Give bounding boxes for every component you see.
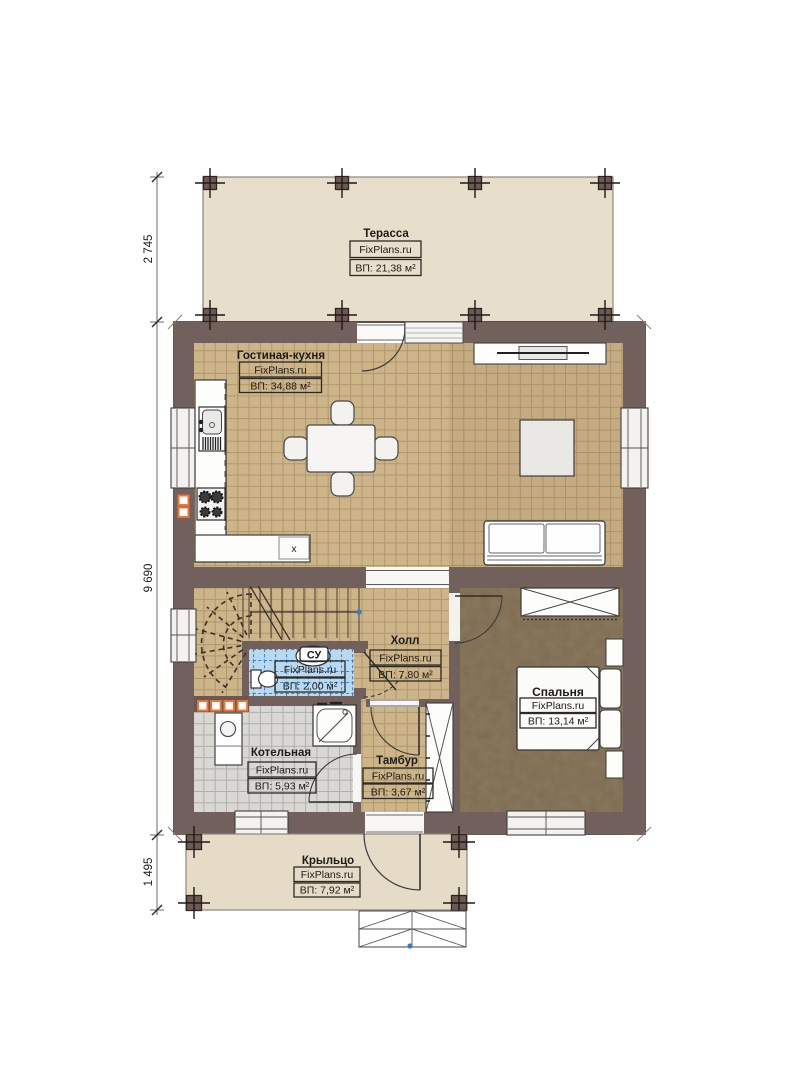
- svg-text:ВП: 2,00 м²: ВП: 2,00 м²: [283, 681, 338, 693]
- svg-text:Котельная: Котельная: [251, 747, 311, 759]
- svg-text:FixPlans.ru: FixPlans.ru: [359, 244, 412, 256]
- svg-text:ВП: 7,92 м²: ВП: 7,92 м²: [300, 885, 355, 897]
- svg-text:9 690: 9 690: [143, 564, 155, 593]
- svg-text:Холл: Холл: [391, 635, 420, 647]
- svg-text:Спальня: Спальня: [532, 685, 584, 699]
- svg-text:Крыльцо: Крыльцо: [302, 855, 354, 867]
- svg-text:FixPlans.ru: FixPlans.ru: [301, 869, 354, 881]
- svg-text:FixPlans.ru: FixPlans.ru: [372, 771, 425, 783]
- svg-text:СУ: СУ: [307, 650, 322, 662]
- svg-text:ВП: 13,14 м²: ВП: 13,14 м²: [528, 716, 589, 728]
- svg-text:ВП: 34,88 м²: ВП: 34,88 м²: [250, 381, 311, 393]
- svg-text:ВП: 3,67 м²: ВП: 3,67 м²: [371, 787, 426, 799]
- svg-text:FixPlans.ru: FixPlans.ru: [256, 765, 309, 777]
- svg-text:ВП: 7,80 м²: ВП: 7,80 м²: [378, 669, 433, 681]
- svg-text:Терасса: Терасса: [363, 228, 409, 240]
- svg-text:FixPlans.ru: FixPlans.ru: [379, 653, 432, 665]
- svg-text:ВП: 21,38 м²: ВП: 21,38 м²: [355, 263, 416, 275]
- svg-text:Гостиная-кухня: Гостиная-кухня: [237, 350, 325, 362]
- svg-text:ВП: 5,93 м²: ВП: 5,93 м²: [255, 781, 310, 793]
- svg-text:FixPlans.ru: FixPlans.ru: [532, 700, 585, 712]
- svg-text:1 495: 1 495: [143, 858, 155, 887]
- svg-text:2 745: 2 745: [143, 235, 155, 264]
- svg-text:FixPlans.ru: FixPlans.ru: [254, 365, 307, 377]
- svg-text:Тамбур: Тамбур: [376, 755, 418, 767]
- svg-text:x: x: [292, 544, 297, 555]
- svg-text:FixPlans.ru: FixPlans.ru: [284, 664, 337, 676]
